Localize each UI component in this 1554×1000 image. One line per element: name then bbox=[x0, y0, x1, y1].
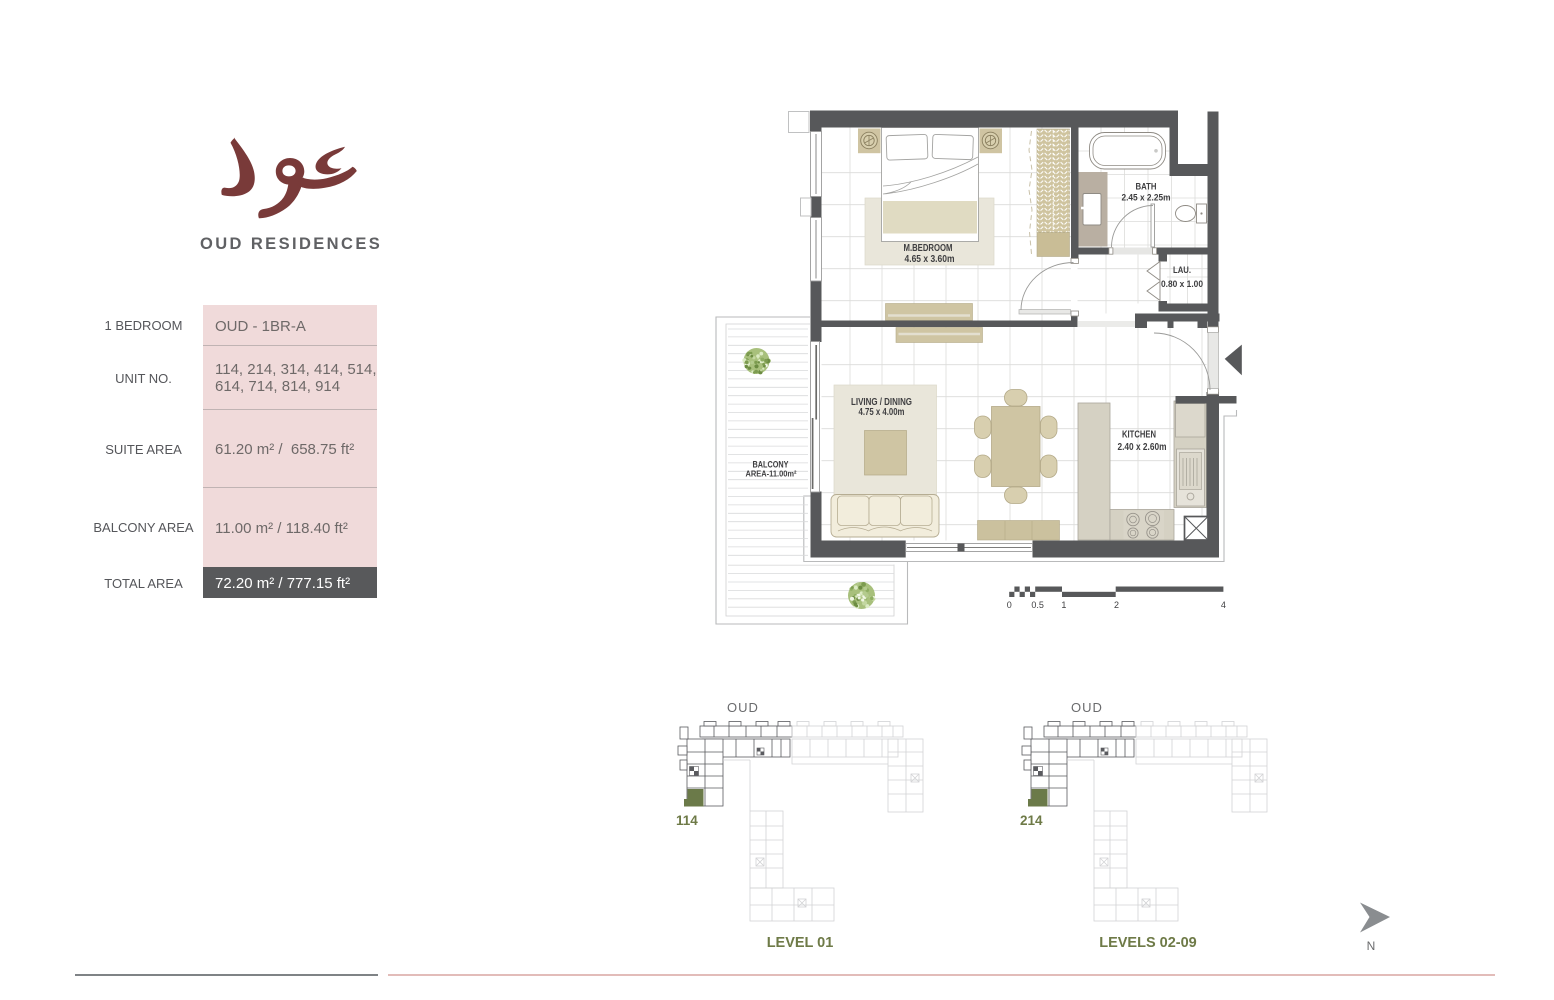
svg-text:M.BEDROOM: M.BEDROOM bbox=[904, 243, 953, 254]
svg-text:4.75 x 4.00m: 4.75 x 4.00m bbox=[859, 407, 905, 418]
svg-text:BATH: BATH bbox=[1136, 181, 1157, 192]
svg-text:2: 2 bbox=[1114, 600, 1119, 610]
svg-text:2.45 x 2.25m: 2.45 x 2.25m bbox=[1122, 192, 1171, 203]
svg-text:4.65 x 3.60m: 4.65 x 3.60m bbox=[905, 254, 955, 265]
svg-text:0: 0 bbox=[1007, 600, 1012, 610]
svg-text:LAU.: LAU. bbox=[1173, 264, 1191, 275]
svg-text:N: N bbox=[1367, 939, 1376, 953]
svg-text:4: 4 bbox=[1221, 600, 1226, 610]
svg-text:AREA-11.00m²: AREA-11.00m² bbox=[746, 469, 797, 479]
svg-text:1: 1 bbox=[1061, 600, 1066, 610]
svg-text:2.40 x 2.60m: 2.40 x 2.60m bbox=[1118, 442, 1167, 453]
svg-text:KITCHEN: KITCHEN bbox=[1122, 430, 1156, 441]
svg-text:0.80 x 1.00: 0.80 x 1.00 bbox=[1161, 278, 1203, 289]
svg-text:0.5: 0.5 bbox=[1031, 600, 1044, 610]
